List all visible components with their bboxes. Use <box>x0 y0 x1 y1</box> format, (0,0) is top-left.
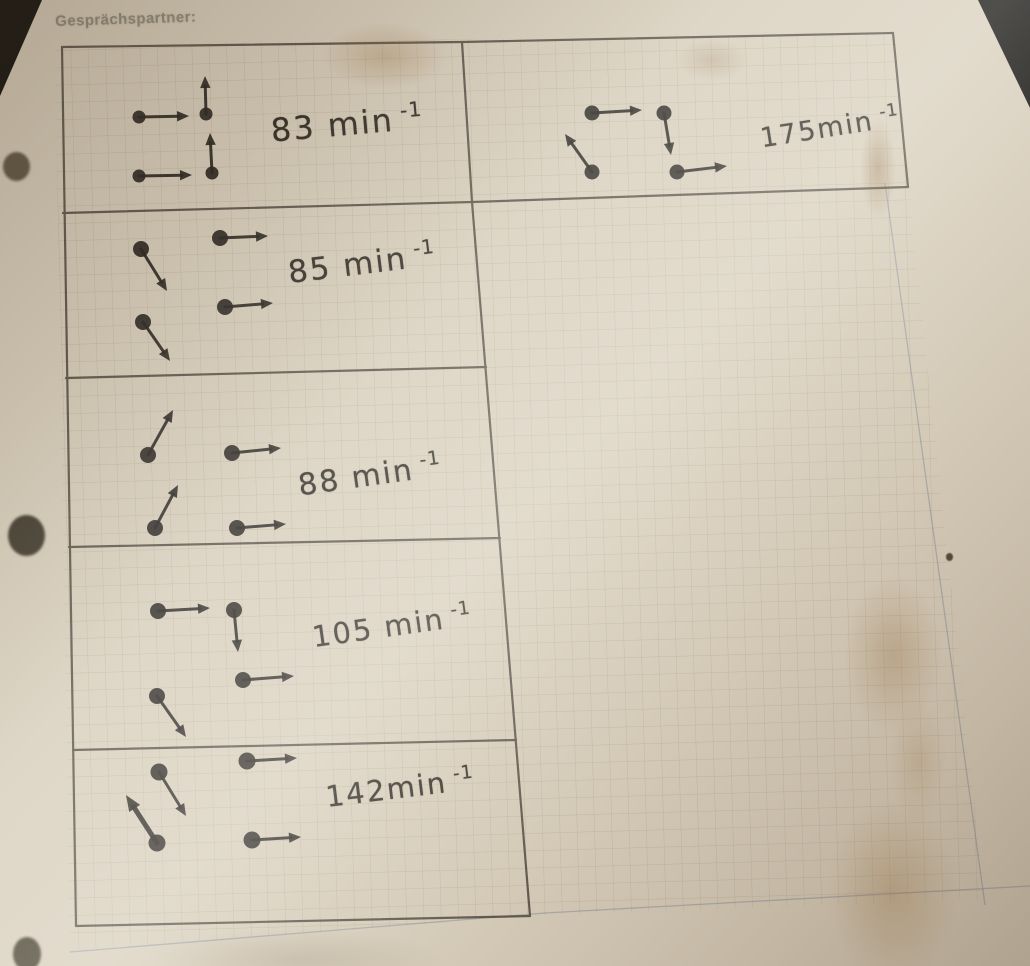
vector-dot <box>149 688 165 704</box>
vector-dot <box>226 602 242 618</box>
vector-dot <box>200 108 213 121</box>
vector-dot <box>133 170 146 183</box>
vector-dot <box>585 106 600 121</box>
vector-dot <box>133 111 146 124</box>
vector-dot <box>217 299 233 315</box>
vector-dot <box>224 445 240 461</box>
hole-punch-bottom <box>13 937 41 966</box>
vector-dot <box>135 314 151 330</box>
vector-dot <box>149 835 166 852</box>
rate-exponent-text: -1 <box>449 597 472 621</box>
rate-exponent-text: -1 <box>452 762 475 785</box>
grid-area <box>55 33 985 950</box>
rate-exponent-text: -1 <box>418 446 442 472</box>
ink-speck <box>946 553 953 561</box>
hole-punch-middle <box>8 515 45 556</box>
vector-dot <box>151 764 168 781</box>
vector-dot <box>229 520 245 536</box>
vector-dot <box>133 241 149 257</box>
vector-dot <box>212 230 228 246</box>
hole-punch-top <box>3 152 30 181</box>
photographed-worksheet: Gesprächspartner: 83 min-1175min-185 min… <box>0 0 1030 966</box>
vector-dot <box>235 672 251 688</box>
vector-dot <box>140 447 156 463</box>
vector-dot <box>585 165 600 180</box>
vector-dot <box>147 520 163 536</box>
rate-exponent-text: -1 <box>399 97 423 123</box>
rate-exponent-text: -1 <box>412 235 436 260</box>
rate-exponent-text: -1 <box>878 100 900 123</box>
vector-dot <box>239 753 256 770</box>
vector-dot <box>150 603 166 619</box>
worksheet-drawing <box>0 0 1030 966</box>
vector-dot <box>670 165 685 180</box>
vector-dot <box>657 106 672 121</box>
vector-dot <box>244 832 261 849</box>
vector-dot <box>206 167 219 180</box>
